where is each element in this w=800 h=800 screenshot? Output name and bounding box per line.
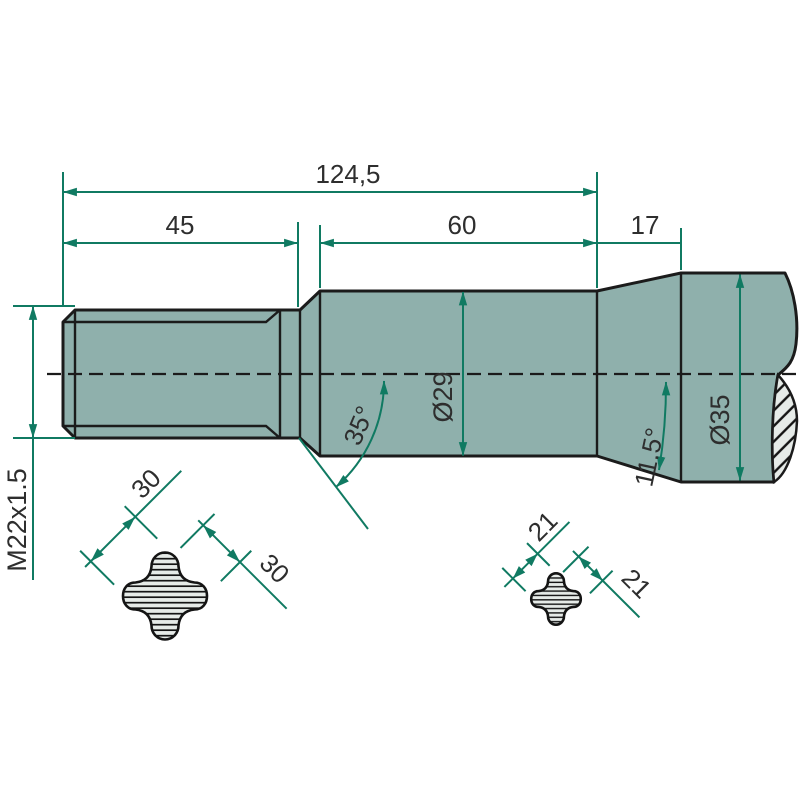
cross-section-b: 21 21 [482, 487, 665, 670]
part-side-view [47, 273, 797, 482]
end-diameter-label: Ø35 [705, 394, 735, 445]
cross-section-a: 30 30 [63, 440, 311, 688]
break-section-hatch [772, 375, 797, 482]
overall-length-label: 124,5 [315, 159, 380, 189]
shaft-length-label: 60 [448, 210, 477, 240]
section-b-dim2-label: 21 [616, 563, 658, 605]
section-a-profile [123, 553, 207, 640]
thread-length-label: 45 [166, 210, 195, 240]
drawing-canvas: 30 30 21 21 [0, 0, 800, 800]
section-a-dimensions: 30 30 [63, 440, 311, 688]
thread-spec-label: M22x1.5 [2, 468, 32, 572]
section-b-dimensions: 21 21 [482, 487, 665, 670]
shaft-diameter-label: Ø29 [428, 371, 458, 422]
technical-drawing: 30 30 21 21 [0, 0, 800, 800]
section-b-profile [531, 573, 581, 624]
section-a-dim1-label: 30 [125, 463, 167, 505]
end-length-label: 17 [631, 210, 660, 240]
section-b-dim1-label: 21 [522, 505, 564, 547]
